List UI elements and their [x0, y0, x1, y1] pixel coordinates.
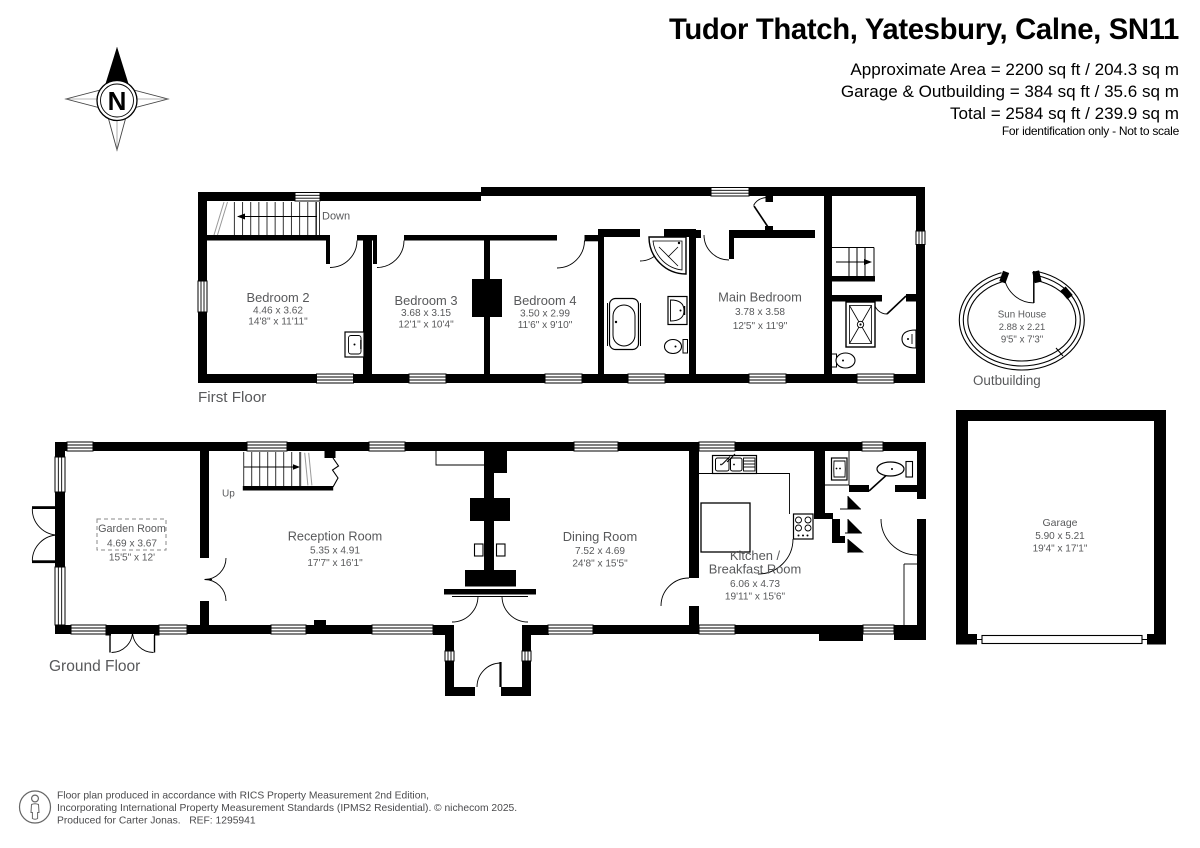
svg-text:2.88 x 2.21: 2.88 x 2.21: [999, 321, 1045, 332]
svg-text:Bedroom 4: Bedroom 4: [513, 293, 576, 308]
svg-text:12'1" x 10'4": 12'1" x 10'4": [398, 320, 454, 331]
svg-text:Garden Room: Garden Room: [98, 523, 166, 535]
svg-text:3.78 x 3.58: 3.78 x 3.58: [735, 307, 785, 318]
svg-text:6.06 x 4.73: 6.06 x 4.73: [730, 579, 780, 590]
svg-text:7.52 x 4.69: 7.52 x 4.69: [575, 546, 625, 557]
svg-text:Garage: Garage: [1042, 517, 1077, 529]
svg-text:First Floor: First Floor: [198, 389, 266, 406]
svg-text:Main Bedroom: Main Bedroom: [718, 290, 802, 305]
svg-text:5.90 x 5.21: 5.90 x 5.21: [1035, 531, 1085, 542]
svg-text:Dining Room: Dining Room: [563, 529, 638, 544]
svg-text:N: N: [108, 86, 127, 116]
svg-text:Total = 2584 sq ft / 239.9 sq: Total = 2584 sq ft / 239.9 sq m: [950, 104, 1179, 123]
svg-text:Approximate Area = 2200 sq ft: Approximate Area = 2200 sq ft / 204.3 sq…: [850, 60, 1179, 79]
svg-text:Incorporating International Pr: Incorporating International Property Mea…: [57, 803, 431, 814]
svg-text:Outbuilding: Outbuilding: [973, 373, 1041, 388]
svg-text:Breakfast Room: Breakfast Room: [709, 562, 801, 577]
svg-text:Ground Floor: Ground Floor: [49, 658, 140, 675]
svg-text:15'5" x 12': 15'5" x 12': [109, 553, 155, 564]
svg-text:Floor plan produced in accorda: Floor plan produced in accordance with R…: [57, 791, 429, 802]
svg-text:3.50 x 2.99: 3.50 x 2.99: [520, 309, 570, 320]
svg-text:9'5" x 7'3": 9'5" x 7'3": [1001, 334, 1044, 345]
svg-text:Garage & Outbuilding = 384 sq: Garage & Outbuilding = 384 sq ft / 35.6 …: [841, 82, 1179, 101]
svg-text:Sun House: Sun House: [998, 310, 1047, 321]
svg-text:Bedroom 3: Bedroom 3: [394, 293, 457, 308]
svg-text:24'8" x 15'5": 24'8" x 15'5": [572, 559, 628, 570]
svg-text:Produced for Carter Jonas. R: Produced for Carter Jonas. REF: 1295941: [57, 816, 256, 827]
svg-text:Reception Room: Reception Room: [288, 530, 383, 544]
svg-text:Up: Up: [222, 489, 235, 500]
svg-text:For identification only - Not: For identification only - Not to scale: [1002, 124, 1180, 138]
svg-text:5.35 x 4.91: 5.35 x 4.91: [310, 546, 360, 557]
svg-text:11'6" x 9'10": 11'6" x 9'10": [518, 320, 573, 331]
svg-text:17'7" x 16'1": 17'7" x 16'1": [307, 558, 363, 569]
svg-text:4.46 x 3.62: 4.46 x 3.62: [253, 306, 303, 317]
svg-text:4.69 x 3.67: 4.69 x 3.67: [107, 539, 157, 550]
svg-text:19'11" x 15'6": 19'11" x 15'6": [725, 592, 786, 603]
svg-text:12'5" x 11'9": 12'5" x 11'9": [733, 321, 788, 332]
svg-text:Bedroom 2: Bedroom 2: [246, 290, 309, 305]
svg-text:3.68 x 3.15: 3.68 x 3.15: [401, 308, 451, 319]
svg-text:Tudor Thatch, Yatesbury, Calne: Tudor Thatch, Yatesbury, Calne, SN11: [669, 13, 1179, 46]
svg-text:19'4" x 17'1": 19'4" x 17'1": [1033, 544, 1088, 555]
svg-text:© nichecom 2025.: © nichecom 2025.: [434, 803, 517, 814]
svg-text:Down: Down: [322, 211, 350, 223]
svg-text:14'8" x 11'11": 14'8" x 11'11": [248, 317, 308, 328]
